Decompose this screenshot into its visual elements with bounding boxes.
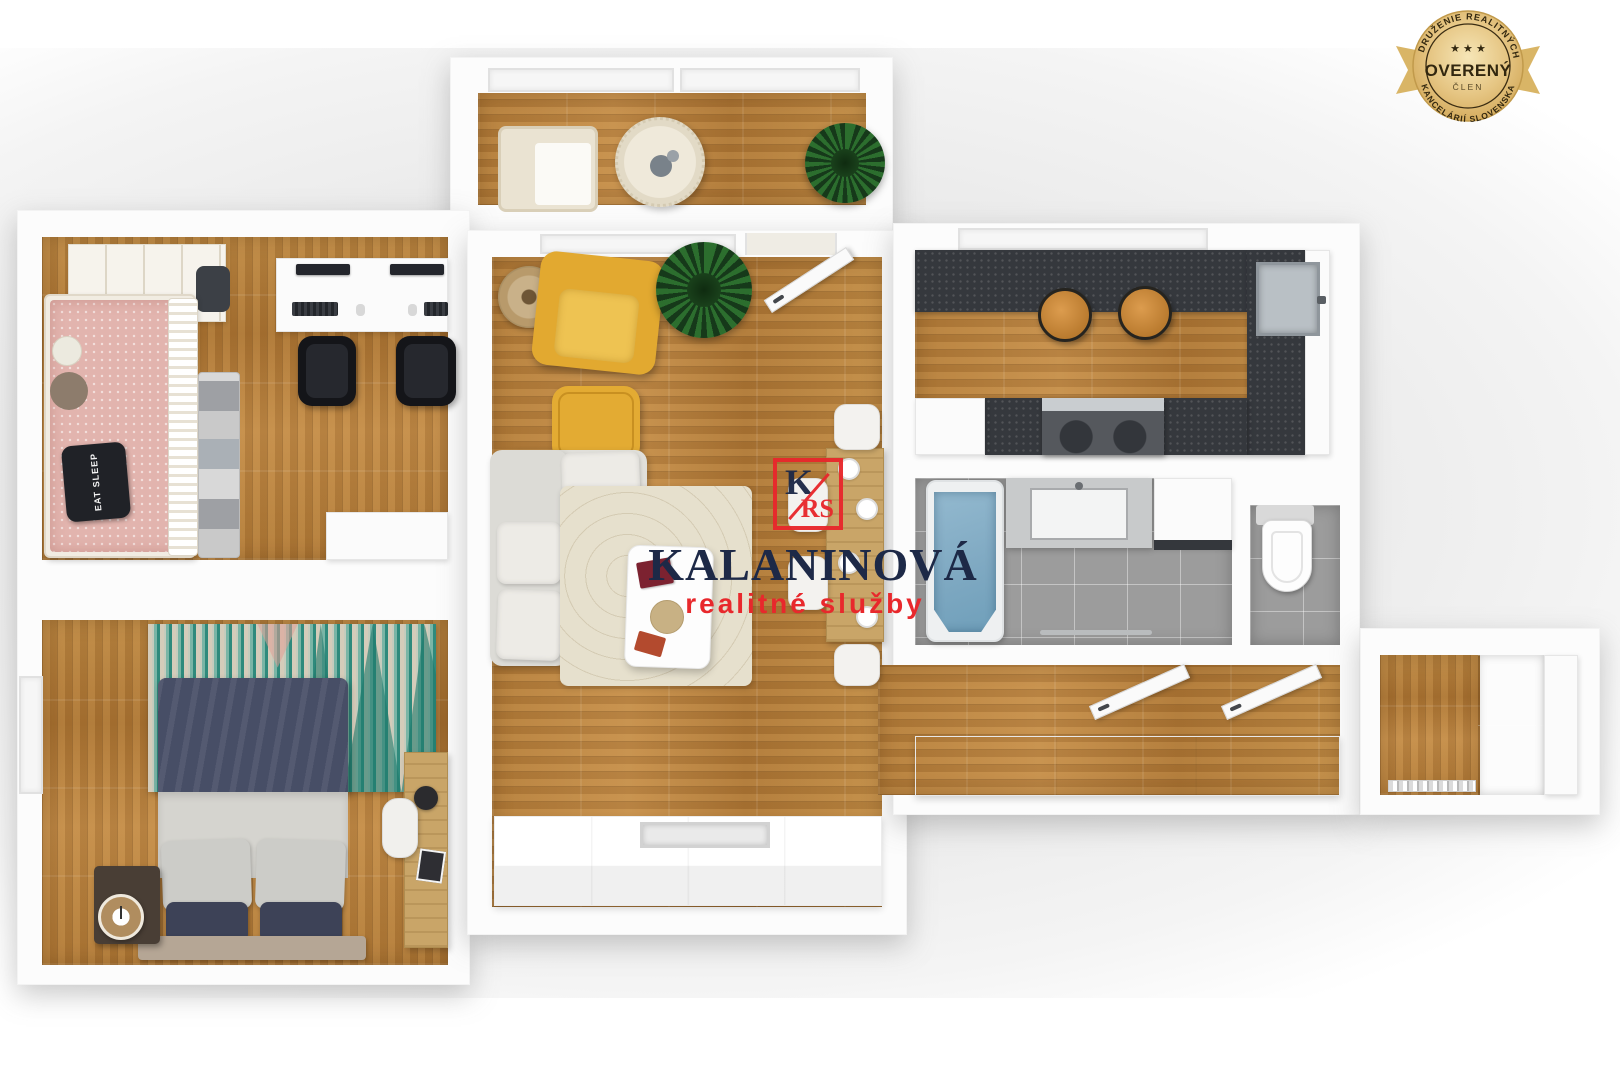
- dining-chair: [834, 404, 880, 450]
- verified-member-badge: ZDRUŽENIE REALITNÝCH ★ ★ ★ OVERENÝ ČLEN …: [1386, 4, 1550, 126]
- gray-pillow: [255, 838, 346, 911]
- badge-stars: ★ ★ ★: [1450, 43, 1486, 55]
- plate: [856, 498, 878, 520]
- plush-toy: [50, 372, 88, 410]
- desk-chair: [382, 798, 418, 858]
- storage-wardrobe: [1544, 655, 1578, 795]
- washing-machine-panel: [1154, 540, 1232, 550]
- badge-subtitle: ČLEN: [1453, 82, 1484, 92]
- gray-pillow: [161, 838, 252, 911]
- hallway-sideboard: [915, 736, 1340, 796]
- balcony-window: [680, 68, 860, 92]
- towel-rail: [1040, 630, 1152, 635]
- mouse: [356, 304, 365, 316]
- master-bedroom-window: [19, 676, 43, 794]
- storage-gray-cabinet: [1478, 655, 1544, 795]
- balcony-window: [488, 68, 674, 92]
- floor-storage-room: [1380, 655, 1480, 795]
- kitchen-window: [958, 228, 1208, 250]
- toy-on-shelf: [196, 266, 230, 312]
- wall-hung-toilet: [1262, 520, 1312, 592]
- navy-duvet: [158, 678, 348, 794]
- storage-door-sill: [1388, 780, 1476, 792]
- pillow-text: EAT SLEEP: [88, 453, 103, 512]
- vanity-sink: [1030, 488, 1128, 540]
- sofa-cushion: [496, 589, 562, 661]
- fridge: [915, 398, 985, 455]
- wicker-bench: [498, 126, 598, 212]
- kitchen-sink: [1256, 262, 1320, 336]
- sofa-cushion: [497, 522, 561, 584]
- monitor: [390, 264, 444, 275]
- keyboard: [424, 302, 448, 316]
- keyboard: [292, 302, 338, 316]
- blanket-stack: [198, 372, 240, 558]
- brand-monogram-rs: RS: [801, 496, 834, 522]
- brand-tagline: realitné služby: [605, 590, 1005, 618]
- bar-stool: [1118, 286, 1172, 340]
- bed-bench-mat: [138, 936, 366, 960]
- bar-stool: [1038, 288, 1092, 342]
- balcony-round-table: [615, 117, 705, 207]
- cooktop-oven: [1042, 398, 1164, 455]
- alarm-clock: [98, 894, 144, 940]
- kids-cabinet: [326, 512, 448, 560]
- potted-plant: [656, 242, 752, 338]
- dining-chair: [834, 644, 880, 686]
- badge-title: OVERENÝ: [1425, 61, 1512, 80]
- brand-name: KALANINOVÁ: [613, 542, 1013, 588]
- photo-frame: [416, 848, 446, 883]
- washing-machine: [1154, 478, 1232, 548]
- yellow-armchair: [530, 250, 665, 376]
- balcony-door-threshold: [745, 233, 837, 255]
- desk-lamp: [414, 786, 438, 810]
- armchair-cushion: [553, 288, 640, 364]
- brand-logo-mark: K RS: [773, 458, 843, 530]
- black-pillow: EAT SLEEP: [61, 441, 131, 522]
- bed-rail: [168, 298, 198, 556]
- office-chair: [298, 336, 356, 406]
- balcony-plant: [805, 123, 885, 203]
- mouse: [408, 304, 417, 316]
- plush-toy: [52, 336, 82, 366]
- office-chair: [396, 336, 456, 406]
- monitor: [296, 264, 350, 275]
- floorplan-canvas: EAT SLEEP: [0, 0, 1620, 1080]
- tv: [640, 822, 770, 848]
